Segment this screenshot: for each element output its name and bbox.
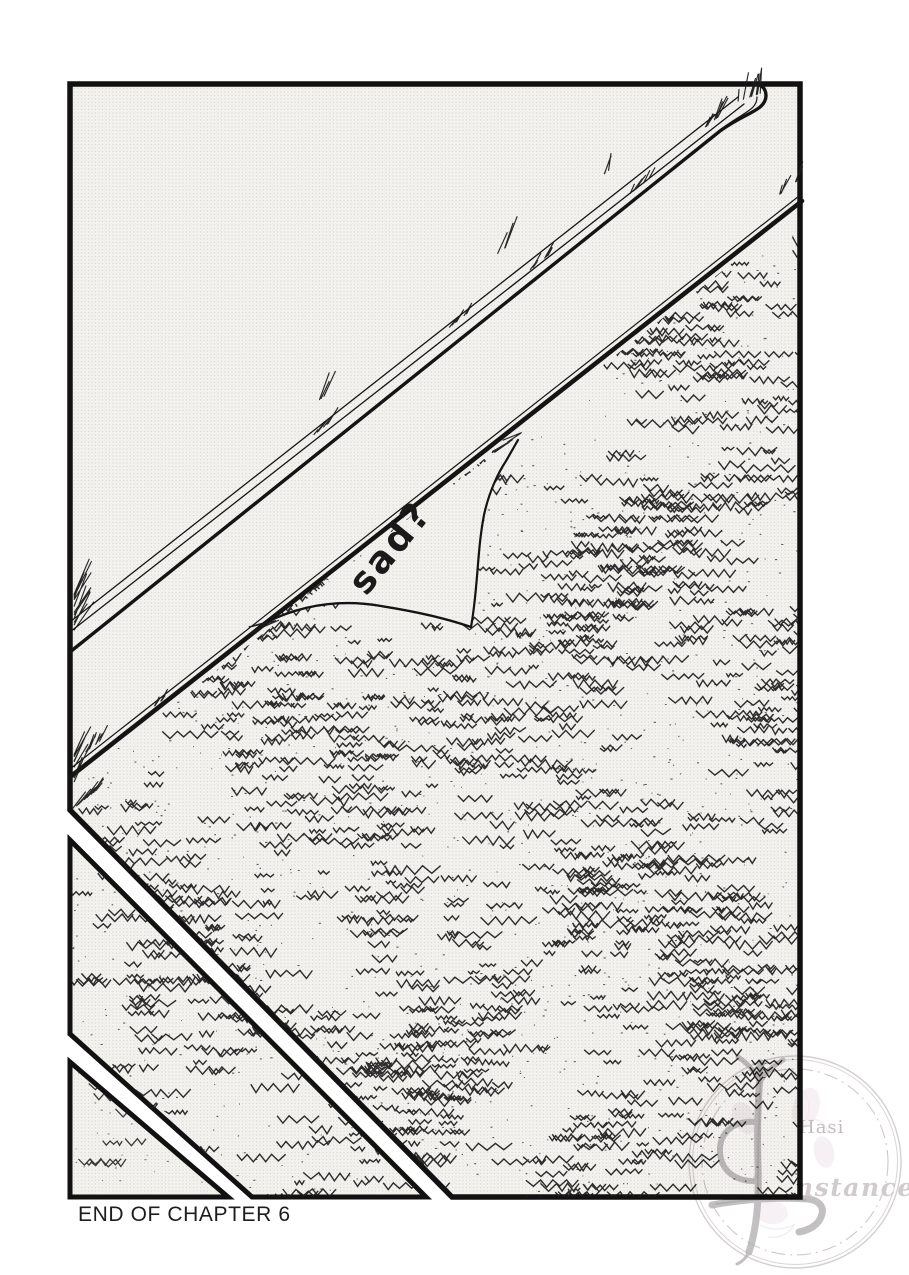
manga-page: sad? — [0, 0, 909, 1275]
end-of-chapter-caption: END OF CHAPTER 6 — [78, 1203, 291, 1227]
panel-artwork: sad? — [0, 0, 909, 1275]
